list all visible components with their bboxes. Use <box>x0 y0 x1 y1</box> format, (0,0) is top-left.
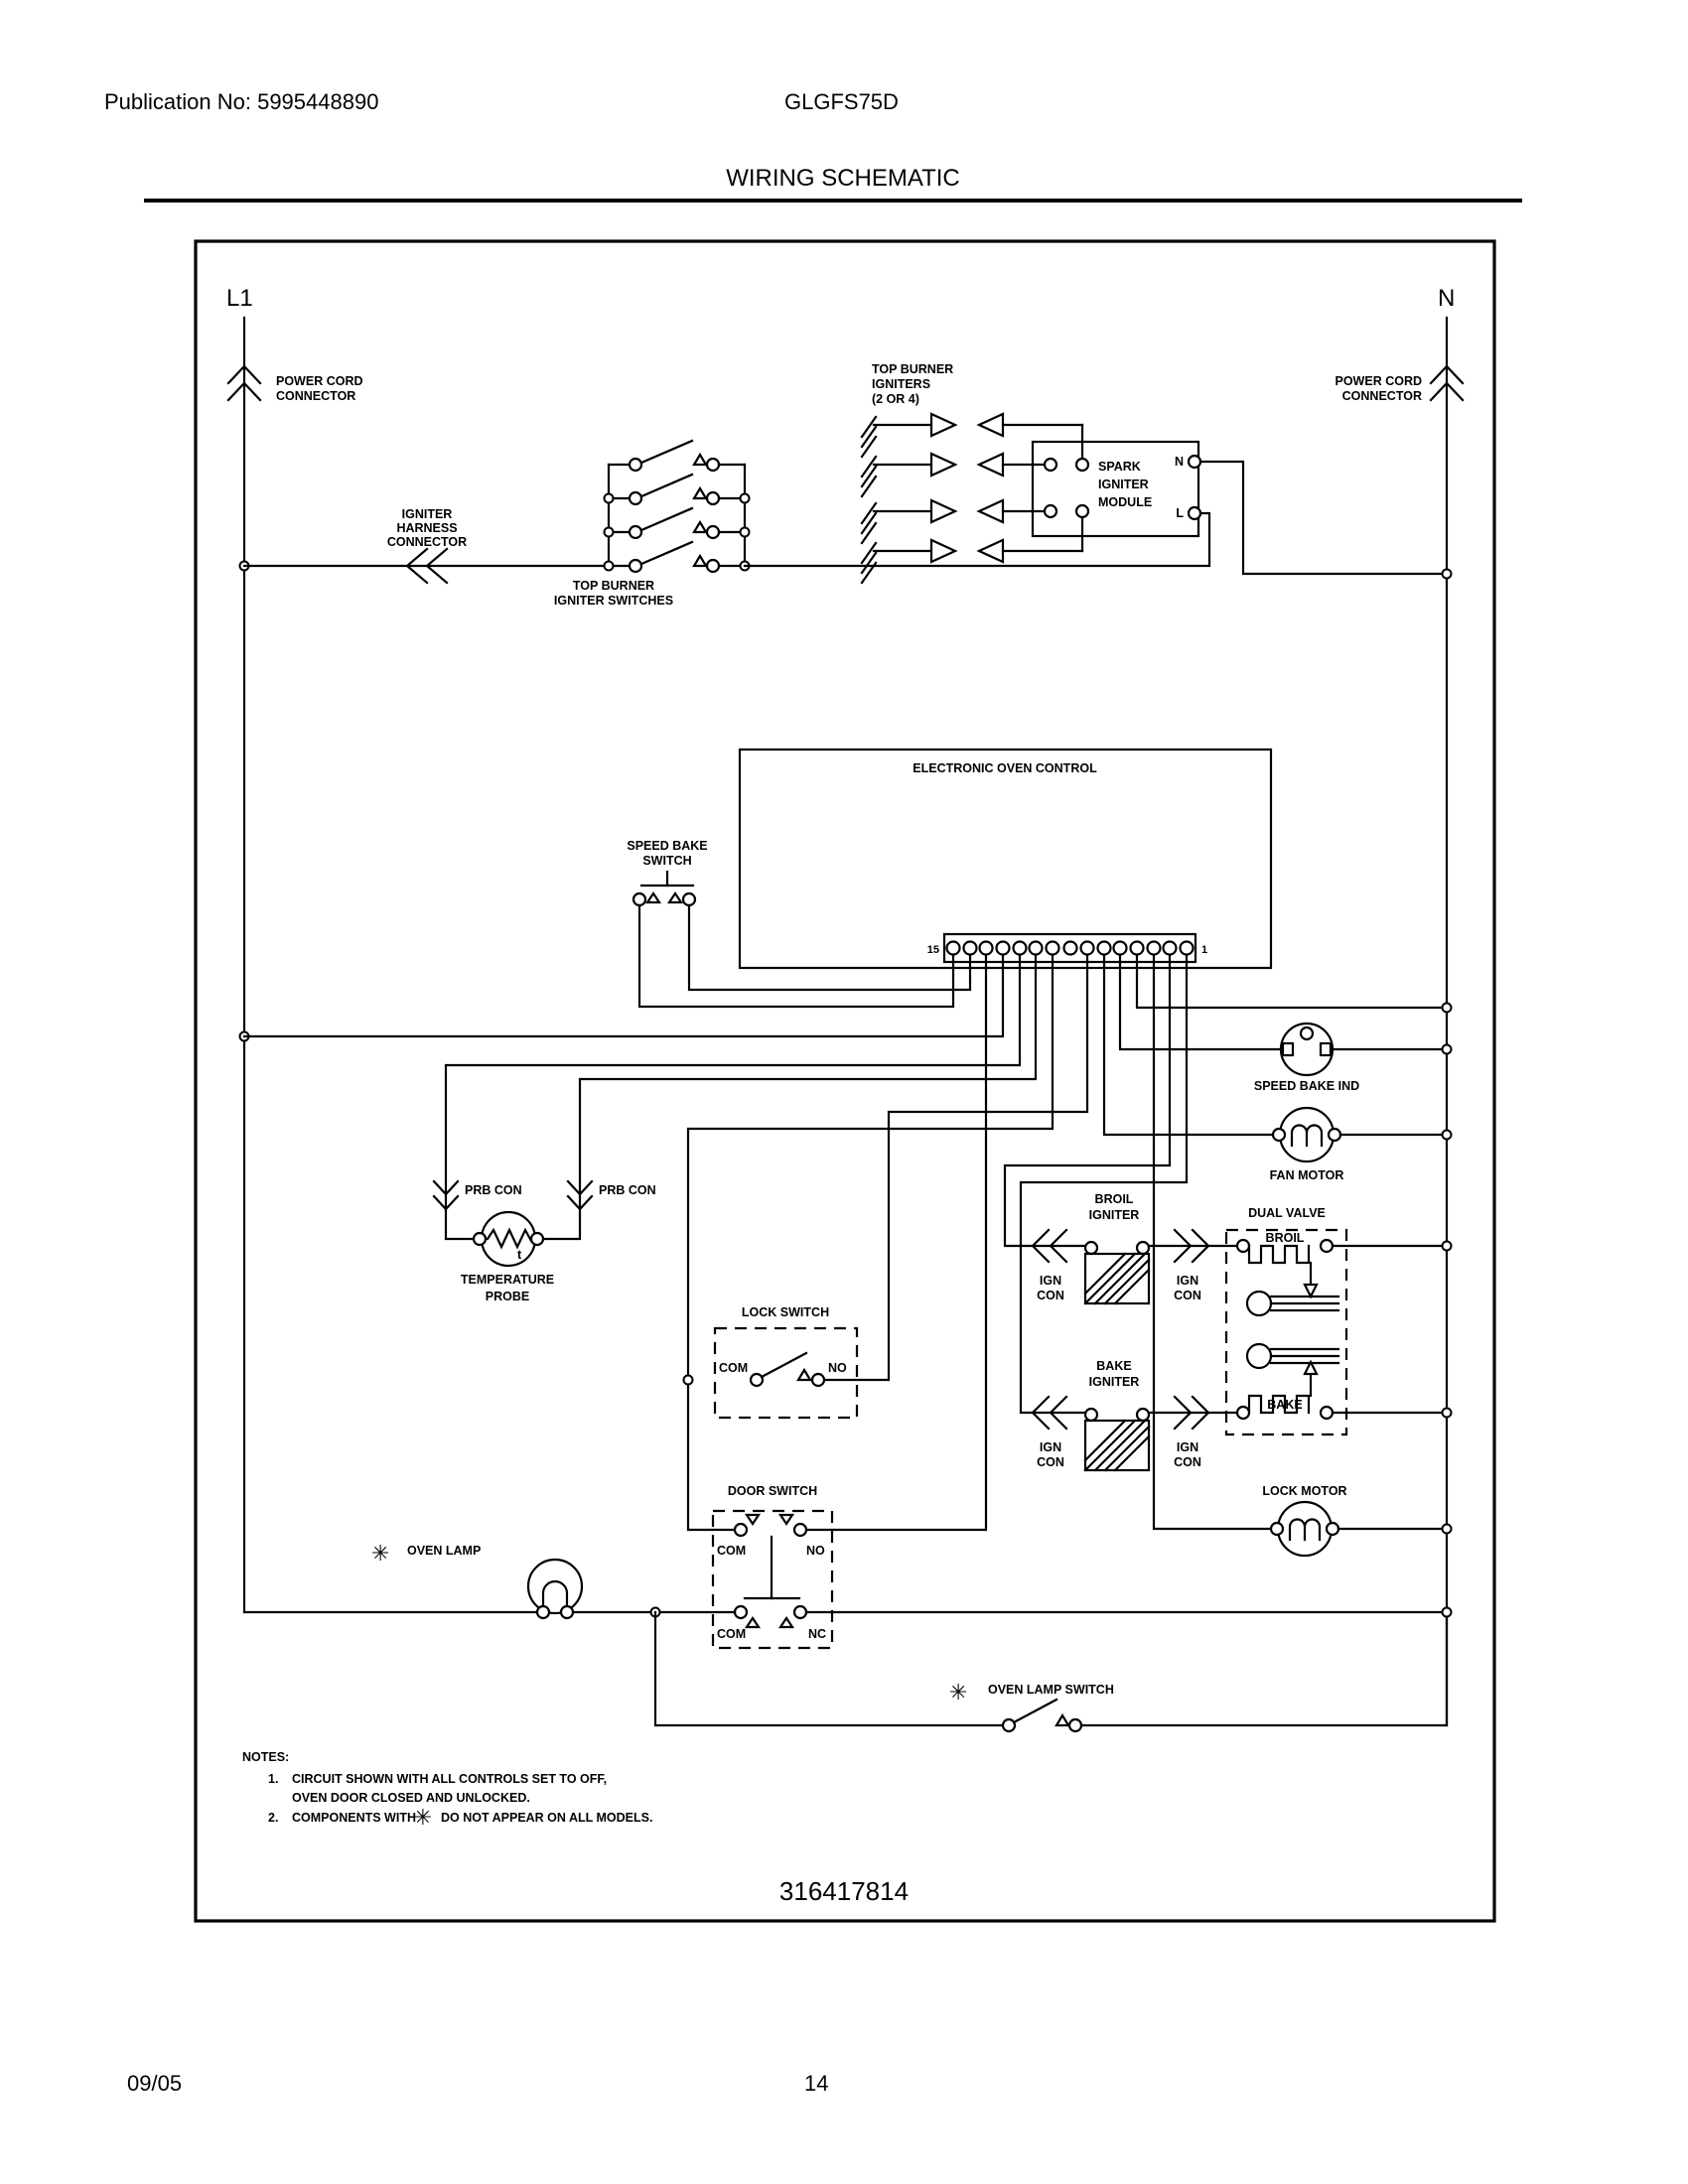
page-title: WIRING SCHEMATIC <box>726 165 960 192</box>
broil-igniter: BROIL IGNITER IGN CON IGN CON <box>1033 1192 1237 1303</box>
spark-igniter-module: SPARK IGNITER MODULE N L <box>745 442 1452 579</box>
oven-lamp-label: OVEN LAMP <box>407 1544 481 1558</box>
door-switch-com-top-label: COM <box>717 1544 746 1558</box>
ign-con-label: IGN <box>1040 1440 1061 1454</box>
igniter-row <box>862 517 1082 583</box>
note-2-line-2: DO NOT APPEAR ON ALL MODELS. <box>441 1811 652 1825</box>
oven-lamp: ✳ OVEN LAMP <box>244 1542 735 1618</box>
lock-motor-label: LOCK MOTOR <box>1262 1484 1346 1498</box>
power-cord-connector-left-label-1: POWER CORD <box>276 374 363 388</box>
igniter-row <box>862 414 1082 459</box>
broil-igniter-label-2: IGNITER <box>1089 1208 1140 1222</box>
door-switch-no-label: NO <box>806 1544 825 1558</box>
eoc-label: ELECTRONIC OVEN CONTROL <box>913 761 1097 775</box>
fan-motor: FAN MOTOR <box>1270 1108 1452 1182</box>
oven-lamp-switch-asterisk: ✳ <box>949 1681 967 1706</box>
switch-row <box>609 441 745 471</box>
igniter-harness-label-3: CONNECTOR <box>387 535 467 549</box>
ign-con-label: IGN <box>1177 1274 1198 1288</box>
electronic-oven-control: ELECTRONIC OVEN CONTROL 15 1 <box>740 750 1271 968</box>
igniter-harness-connector: IGNITER HARNESS CONNECTOR <box>244 507 609 583</box>
diagram-part-number: 316417814 <box>779 1876 909 1906</box>
dual-valve-broil-label: BROIL <box>1266 1231 1305 1245</box>
dual-valve: DUAL VALVE BROIL BAKE <box>1226 1206 1452 1434</box>
prb-con-left-label: PRB CON <box>465 1183 522 1197</box>
bake-igniter-label-1: BAKE <box>1096 1359 1131 1373</box>
top-burner-switches-label-1: TOP BURNER <box>573 579 654 593</box>
oven-lamp-switch-label: OVEN LAMP SWITCH <box>988 1683 1114 1697</box>
top-burner-igniters-label-1: TOP BURNER <box>872 362 953 376</box>
prb-con-right-label: PRB CON <box>599 1183 656 1197</box>
top-burner-switches-label-2: IGNITER SWITCHES <box>554 594 673 608</box>
speed-bake-indicator: SPEED BAKE IND <box>1254 1024 1452 1093</box>
wiring-schematic: Publication No: 5995448890 GLGFS75D WIRI… <box>0 0 1688 2184</box>
title-rule <box>144 199 1522 203</box>
ign-con-label: CON <box>1174 1455 1201 1469</box>
switch-row <box>605 542 750 572</box>
bake-igniter: BAKE IGNITER IGN CON IGN CON <box>1033 1359 1237 1470</box>
oven-lamp-asterisk: ✳ <box>371 1542 389 1567</box>
l1-label: L1 <box>226 285 253 312</box>
eoc-terminal-15-label: 15 <box>927 944 939 956</box>
temperature-probe-label-2: PROBE <box>486 1290 529 1303</box>
door-switch-nc-label: NC <box>808 1627 826 1641</box>
speed-bake-switch-label-1: SPEED BAKE <box>627 839 707 853</box>
igniter-row <box>862 500 1045 543</box>
lock-switch-label: LOCK SWITCH <box>742 1305 829 1319</box>
spark-module-label-2: IGNITER <box>1098 478 1149 491</box>
top-burner-igniters: TOP BURNER IGNITERS (2 OR 4) <box>862 362 1082 583</box>
spark-module-label-1: SPARK <box>1098 460 1141 474</box>
power-cord-connector-right-label-1: POWER CORD <box>1336 374 1423 388</box>
igniter-harness-label-1: IGNITER <box>402 507 453 521</box>
door-switch-com-bottom-label: COM <box>717 1627 746 1641</box>
model-number: GLGFS75D <box>784 89 899 114</box>
notes-heading: NOTES: <box>242 1750 289 1764</box>
note-1-line-2: OVEN DOOR CLOSED AND UNLOCKED. <box>292 1791 530 1805</box>
eoc-terminals <box>947 942 1194 955</box>
speed-bake-ind-label: SPEED BAKE IND <box>1254 1079 1359 1093</box>
eoc-terminal-1-label: 1 <box>1201 944 1207 956</box>
door-switch-label: DOOR SWITCH <box>728 1484 817 1498</box>
dual-valve-bake-label: BAKE <box>1267 1398 1302 1412</box>
top-burner-igniters-label-3: (2 OR 4) <box>872 392 919 406</box>
top-burner-igniters-label-2: IGNITERS <box>872 377 930 391</box>
spark-module-label-3: MODULE <box>1098 495 1152 509</box>
oven-lamp-switch: ✳ OVEN LAMP SWITCH <box>655 1612 1447 1731</box>
door-switch: DOOR SWITCH COM NO COM NC <box>713 1484 1452 1648</box>
ign-con-label: IGN <box>1040 1274 1061 1288</box>
ign-con-label: CON <box>1037 1455 1064 1469</box>
footer-date: 09/05 <box>127 2071 182 2096</box>
power-cord-connector-left-label-2: CONNECTOR <box>276 389 355 403</box>
footer-page-number: 14 <box>804 2071 828 2096</box>
top-burner-igniter-switches: TOP BURNER IGNITER SWITCHES <box>554 441 750 608</box>
ign-con-label: CON <box>1037 1289 1064 1302</box>
schematic-page: Publication No: 5995448890 GLGFS75D WIRI… <box>0 0 1688 2184</box>
ign-con-label: CON <box>1174 1289 1201 1302</box>
publication-number: Publication No: 5995448890 <box>104 89 378 114</box>
switch-row <box>605 475 750 504</box>
n-label: N <box>1438 285 1455 312</box>
lock-motor: LOCK MOTOR <box>1262 1484 1451 1556</box>
power-cord-connector-right-label-2: CONNECTOR <box>1342 389 1422 403</box>
spark-module-n-terminal-label: N <box>1175 455 1184 469</box>
bake-igniter-label-2: IGNITER <box>1089 1375 1140 1389</box>
fan-motor-label: FAN MOTOR <box>1270 1168 1344 1182</box>
dual-valve-label: DUAL VALVE <box>1248 1206 1326 1220</box>
temperature-probe-label-1: TEMPERATURE <box>461 1273 554 1287</box>
lock-switch-com-label: COM <box>719 1361 748 1375</box>
spark-module-l-terminal-label: L <box>1176 506 1184 520</box>
switch-row <box>605 508 750 538</box>
note-1-line-1: CIRCUIT SHOWN WITH ALL CONTROLS SET TO O… <box>292 1772 607 1786</box>
note-2-number: 2. <box>268 1811 278 1825</box>
lock-switch-no-label: NO <box>828 1361 847 1375</box>
lock-switch: LOCK SWITCH COM NO <box>715 1305 857 1418</box>
note-2-asterisk: ✳ <box>414 1806 432 1831</box>
speed-bake-switch: SPEED BAKE SWITCH <box>627 839 970 1007</box>
l1-rail: L1 POWER CORD CONNECTOR <box>226 285 363 1612</box>
igniter-row <box>862 454 1045 496</box>
note-1-number: 1. <box>268 1772 278 1786</box>
temperature-probe: PRB CON PRB CON t TEMPERATURE PROBE <box>434 1181 656 1303</box>
notes: NOTES: 1. CIRCUIT SHOWN WITH ALL CONTROL… <box>242 1750 652 1831</box>
broil-igniter-label-1: BROIL <box>1095 1192 1134 1206</box>
speed-bake-switch-label-2: SWITCH <box>642 854 691 868</box>
ign-con-label: IGN <box>1177 1440 1198 1454</box>
igniter-harness-label-2: HARNESS <box>396 521 457 535</box>
note-2-line-1: COMPONENTS WITH <box>292 1811 416 1825</box>
